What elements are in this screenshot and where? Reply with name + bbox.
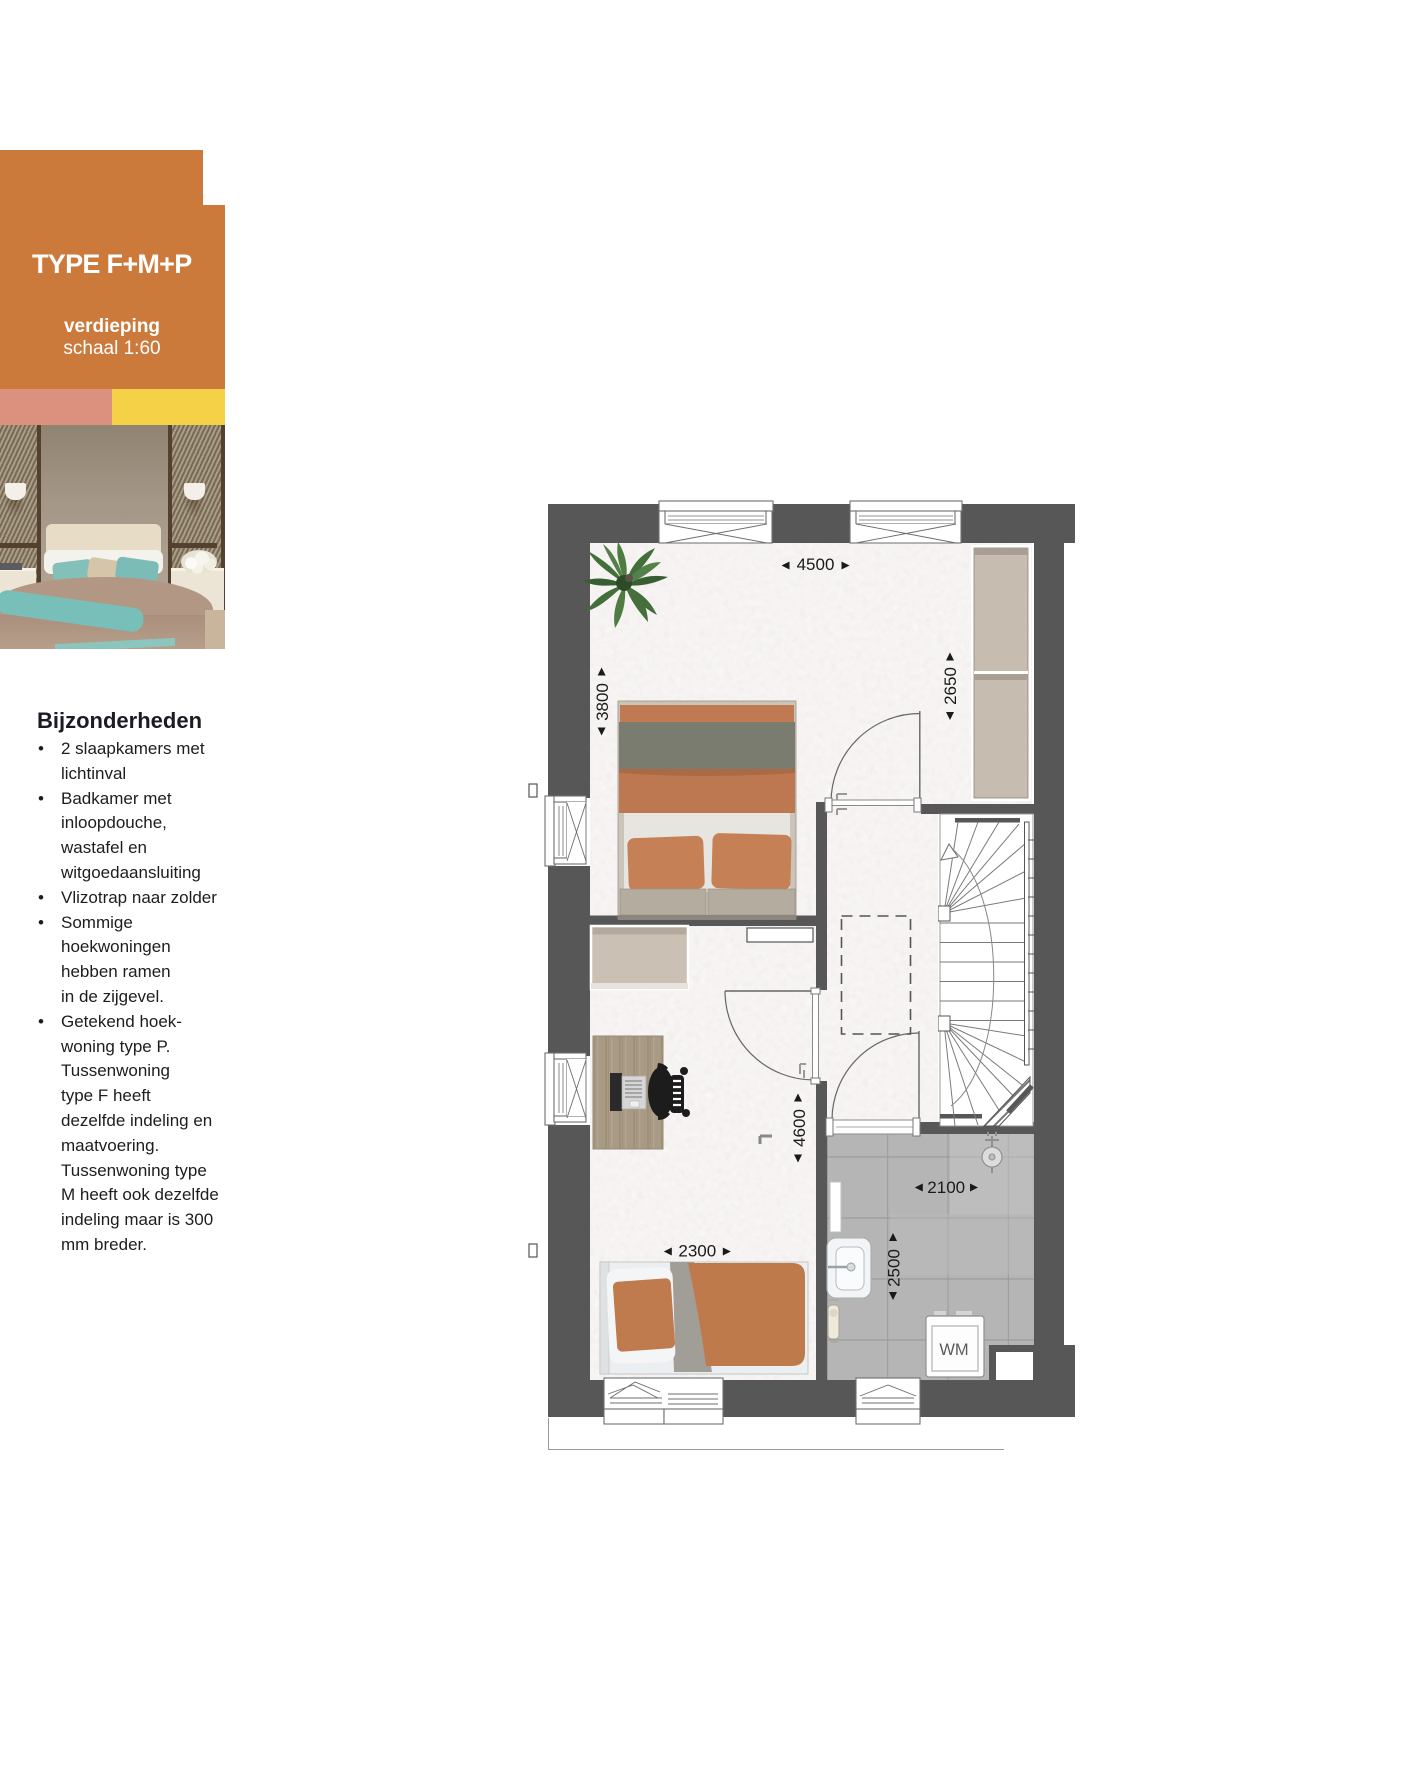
svg-text:4500: 4500: [797, 555, 835, 574]
svg-text:WM: WM: [939, 1341, 968, 1359]
svg-text:2100: 2100: [927, 1178, 965, 1197]
svg-text:2500: 2500: [885, 1249, 904, 1287]
svg-text:3800: 3800: [593, 683, 612, 721]
svg-text:2300: 2300: [678, 1242, 716, 1261]
svg-text:2650: 2650: [941, 667, 960, 705]
svg-text:4600: 4600: [790, 1109, 809, 1147]
